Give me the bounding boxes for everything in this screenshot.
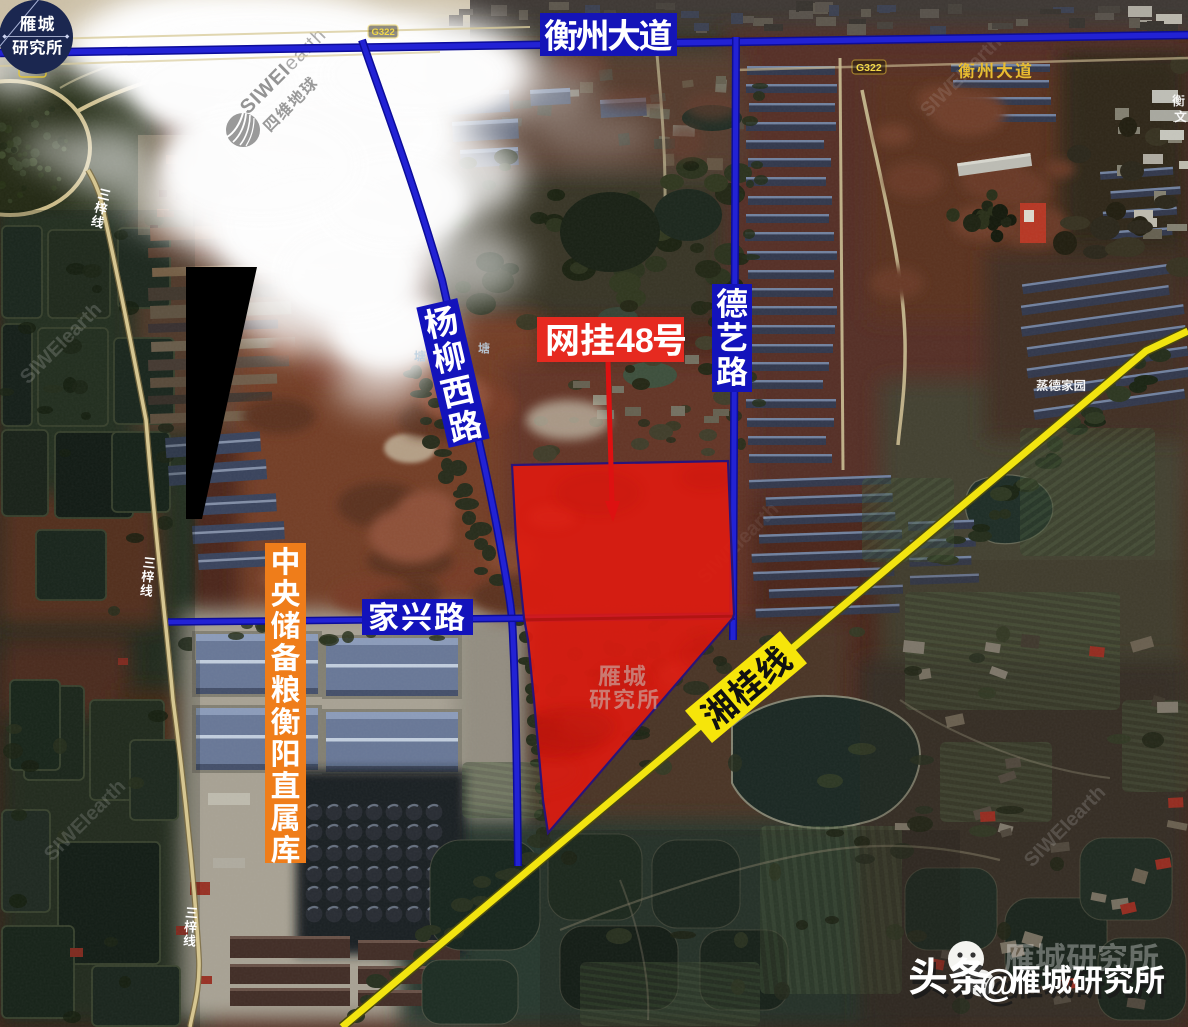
svg-text:G322: G322 <box>856 62 882 74</box>
svg-text:G322: G322 <box>372 27 395 38</box>
svg-text:@: @ <box>979 963 1016 1005</box>
svg-text:48: 48 <box>616 322 654 360</box>
